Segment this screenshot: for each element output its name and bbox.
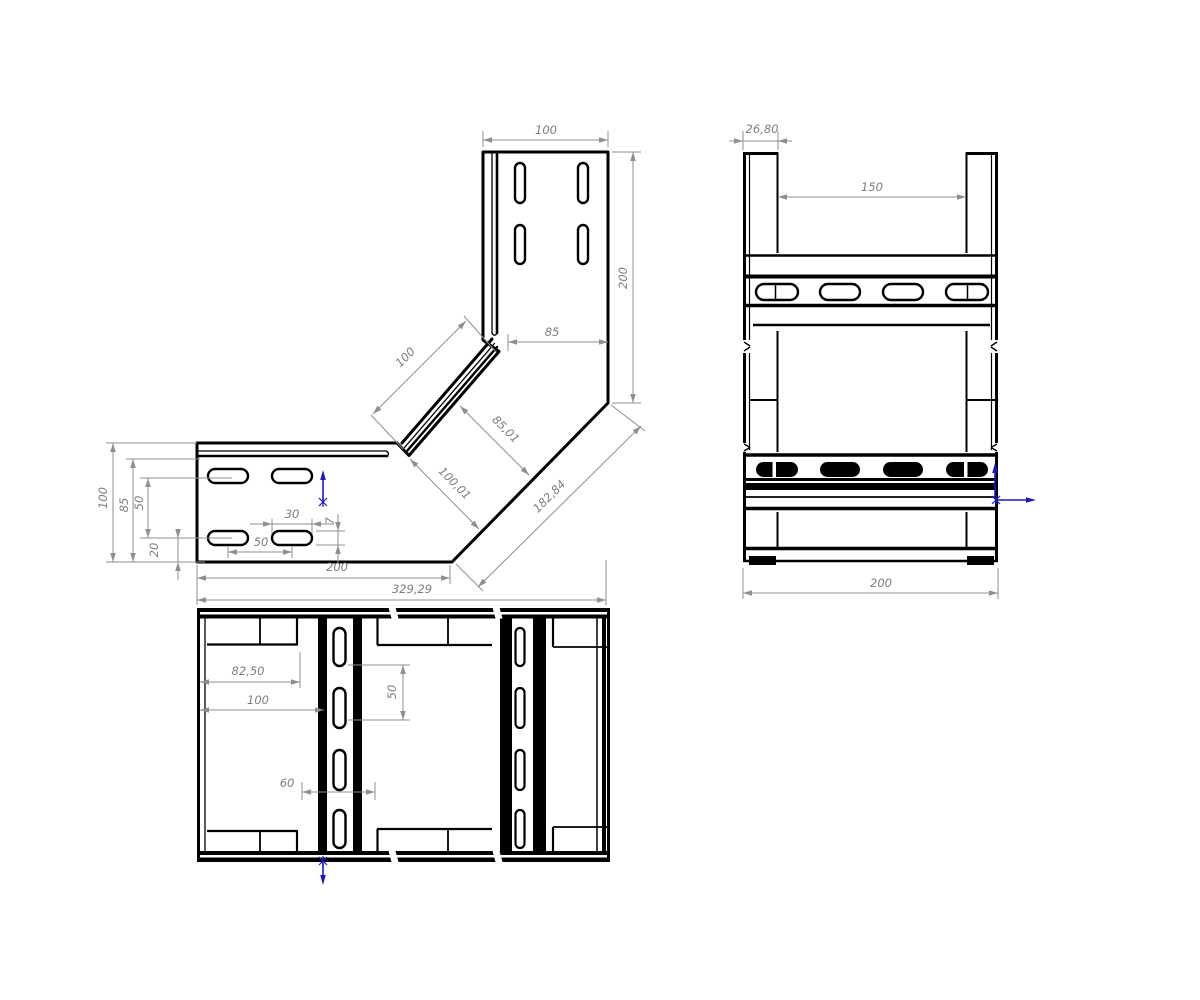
dimension-label: 50 xyxy=(385,685,399,700)
dimension-total-width: 329,29 xyxy=(197,560,606,605)
front-rail-vertical xyxy=(492,152,497,335)
dimension-label: 200 xyxy=(870,576,892,590)
dimension-label: 20 xyxy=(147,543,161,558)
dimensions-layer: 1002008510085,01100,01182,84200329,29100… xyxy=(96,122,998,800)
slot xyxy=(883,284,923,300)
front-slots-vertical-arm xyxy=(515,163,588,264)
dimension-label: 100 xyxy=(535,123,557,137)
plan-view xyxy=(197,606,610,864)
front-rail-horizontal xyxy=(197,451,389,456)
dimension-label: 26,80 xyxy=(746,122,779,136)
side-view xyxy=(743,152,998,565)
dimension-edge-to-wing: 82,50 xyxy=(200,652,300,688)
dimension-diagonal-width-a: 85,01 xyxy=(460,406,529,475)
dimension-label: 182,84 xyxy=(530,477,568,515)
technical-drawing-canvas: 1002008510085,01100,01182,84200329,29100… xyxy=(0,0,1200,1000)
dimension-label: 100,01 xyxy=(436,464,474,502)
side-outer-rails xyxy=(745,152,997,560)
connection-arrow-front xyxy=(319,470,327,507)
slot xyxy=(756,284,798,300)
foot xyxy=(749,556,776,565)
slot xyxy=(756,462,798,477)
dimension-diagonal-width-b: 100,01 xyxy=(410,459,479,529)
dimension-label: 150 xyxy=(861,180,883,194)
dimension-label: 329,29 xyxy=(392,582,432,596)
dimension-label: 100 xyxy=(247,693,269,707)
dimension-inner-width: 150 xyxy=(778,180,966,200)
dimension-label: 7 xyxy=(323,517,337,525)
slot xyxy=(272,469,312,483)
dimension-label: 85 xyxy=(117,498,131,513)
slot xyxy=(578,163,588,203)
dimension-label: 50 xyxy=(132,496,146,511)
slot xyxy=(516,810,525,848)
dimension-label: 200 xyxy=(326,560,348,574)
dimension-label: 85 xyxy=(545,325,560,339)
side-upper-slots xyxy=(756,284,988,300)
dimension-label: 200 xyxy=(616,267,630,289)
slot xyxy=(334,810,346,848)
slot xyxy=(883,462,923,477)
slot xyxy=(578,225,588,264)
connection-arrow-side xyxy=(992,463,1036,505)
plan-wing-bands xyxy=(207,618,609,851)
dimension-label: 100 xyxy=(392,344,417,369)
plan-rung-band-2 xyxy=(500,619,546,852)
slot xyxy=(516,628,525,666)
dimension-label: 100 xyxy=(96,487,110,509)
slot xyxy=(516,688,525,728)
dimension-diagonal-outer: 182,84 xyxy=(456,405,645,591)
dimension-edge-to-rung: 100 xyxy=(200,693,324,713)
plan-rung-band-1 xyxy=(318,619,362,852)
side-upper-bands xyxy=(743,256,998,401)
dimension-overall-width: 200 xyxy=(743,568,998,599)
slot xyxy=(334,628,346,666)
slot xyxy=(208,469,248,483)
slot xyxy=(516,750,525,790)
side-lower-slots xyxy=(756,461,988,478)
dimension-top-width: 100 xyxy=(483,123,608,147)
dimension-label: 60 xyxy=(280,776,295,790)
slot xyxy=(515,225,525,264)
slot xyxy=(820,284,860,300)
dimension-slot-row-spacing: 50 xyxy=(132,478,232,538)
slot xyxy=(334,750,346,790)
dimension-flange-width: 26,80 xyxy=(729,122,792,150)
connection-markers xyxy=(319,463,1036,885)
dimension-upper-inner: 85 xyxy=(508,325,608,351)
dimension-label: 50 xyxy=(254,535,269,549)
slot xyxy=(334,688,346,728)
dimension-arm-length: 200 xyxy=(197,560,450,584)
slot xyxy=(272,531,312,545)
dimension-label: 82,50 xyxy=(232,664,265,678)
foot xyxy=(967,556,994,565)
side-joint-marks xyxy=(744,342,997,451)
slot xyxy=(820,462,860,477)
dimension-right-height: 200 xyxy=(612,152,641,403)
drawing-page: 1002008510085,01100,01182,84200329,29100… xyxy=(0,0,1200,1000)
slot xyxy=(515,163,525,203)
dimension-label: 30 xyxy=(285,507,300,521)
